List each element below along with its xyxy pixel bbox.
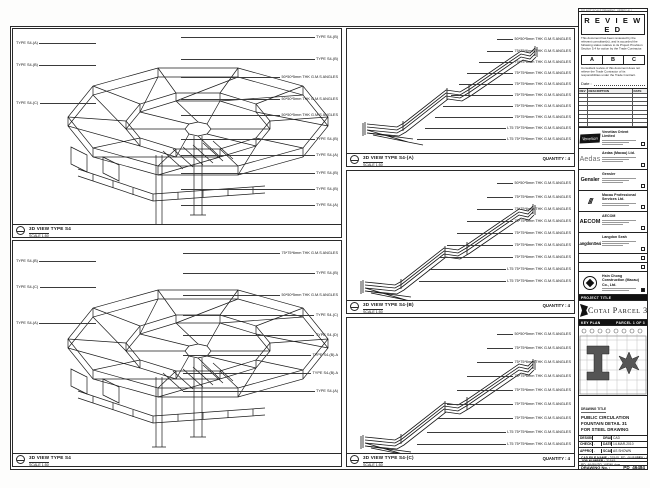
panel-caption: 3D VIEW TYPE S4 SCALE 1:50 bbox=[13, 453, 341, 466]
status-option-b: B bbox=[603, 56, 624, 64]
approval-checkbox-checked bbox=[641, 288, 646, 293]
panel-caption: 3D VIEW TYPE S4-(A) SCALE 1:50 QUANTITY … bbox=[347, 153, 574, 166]
contractor-hsin-chong: Hsin Chong Construction (Macau) Co., Ltd… bbox=[579, 272, 647, 295]
leader-label: 75*75*6mm THK G.M.S ANGLES bbox=[443, 104, 571, 108]
leader-label: 75*75*6mm THK G.M.S ANGLES bbox=[437, 416, 571, 420]
reviewed-stamp: R E V I E W E D This document has been r… bbox=[579, 12, 647, 89]
view-title: 3D VIEW TYPE S4 bbox=[29, 455, 71, 460]
panel-caption: 3D VIEW TYPE S4 SCALE 1:50 bbox=[13, 224, 341, 237]
consultant-macau-professional-services: /// Macau Professional Services Ltd. bbox=[579, 191, 647, 212]
leader-label: 50*50*5mm THK G.M.S ANGLES bbox=[181, 97, 338, 101]
leader-label: 50*50*5mm THK G.M.S ANGLES bbox=[497, 37, 571, 41]
banner-ornament-icon bbox=[580, 304, 588, 317]
leader-label: TYPE S4-(B) bbox=[16, 259, 96, 263]
leader-label: 75*75*6mm THK G.M.S ANGLES bbox=[457, 231, 571, 235]
leader-label: 75*75*6mm THK G.M.S ANGLES bbox=[447, 402, 571, 406]
consultant-name: AECOM bbox=[602, 214, 641, 218]
leader-label: L75 75*75*6mm THK G.M.S ANGLES bbox=[425, 126, 571, 130]
panel-3d-view-type-s4-c: 50*50*5mm THK G.M.S ANGLES 75*75*6mm THK… bbox=[346, 317, 575, 467]
consultant-name: Aedas (Macau) Ltd. bbox=[602, 151, 641, 155]
gensler-logo: Gensler bbox=[579, 170, 601, 190]
panel-3d-view-type-s4-a: 50*50*5mm THK G.M.S ANGLES 75*75*6mm THK… bbox=[346, 28, 575, 167]
detail-bubble-icon bbox=[16, 455, 25, 464]
consultant-name: Langdon Seah bbox=[602, 235, 641, 239]
drawing-title-section: DRAWING TITLE PUBLIC CIRCULATION FOUNTAI… bbox=[579, 396, 647, 435]
panel-3d-view-type-s4-top: TYPE S4-(B) TYPE S4-(B) 50*50*5mm THK G.… bbox=[12, 28, 342, 238]
consultant-empty-slot bbox=[579, 263, 647, 272]
view-quantity: QUANTITY : 4 bbox=[543, 456, 570, 461]
project-name: Cotai Parcel 3 bbox=[588, 306, 648, 315]
drawing-sheet: { "panels": { "p1": { "title": "3D VIEW … bbox=[0, 0, 650, 488]
leader-label: 75*75*6mm THK G.M.S ANGLES bbox=[487, 346, 571, 350]
leader-label: 75*75*6mm THK G.M.S ANGLES bbox=[451, 93, 571, 97]
panel-caption: 3D VIEW TYPE S4-(C) SCALE 1:50 QUANTITY … bbox=[347, 453, 574, 466]
hsin-chong-emblem-icon bbox=[579, 272, 601, 294]
revision-table: REV DESCRIPTION DATE bbox=[579, 89, 647, 129]
consultant-name: Macau Professional Services Ltd. bbox=[602, 193, 641, 202]
view-scale: SCALE 1:50 bbox=[29, 462, 49, 467]
approval-checkbox bbox=[641, 247, 646, 252]
leader-label: 75*75*6mm THK G.M.S ANGLES bbox=[477, 207, 571, 211]
aedas-logo: Aedas bbox=[579, 149, 601, 169]
consultant-langdon-seah: LangdonSeah Langdon Seah bbox=[579, 233, 647, 254]
view-quantity: QUANTITY : 4 bbox=[543, 303, 570, 308]
view-title: 3D VIEW TYPE S4-(B) bbox=[363, 302, 414, 307]
leader-label: 75*75*6mm THK G.M.S ANGLES bbox=[439, 255, 571, 259]
approval-checkbox bbox=[641, 142, 646, 147]
approval-checkbox bbox=[641, 184, 646, 189]
panel-3d-view-type-s4-bottom: 75*75*6mm THK G.M.S ANGLES TYPE S4-(B) 5… bbox=[12, 240, 342, 467]
leader-label: TYPE S4-(A) bbox=[16, 321, 96, 325]
leader-label: 75*75*6mm THK G.M.S ANGLES bbox=[183, 251, 338, 255]
leader-label: 50*50*5mm THK G.M.S ANGLES bbox=[497, 332, 571, 336]
status-option-a: A bbox=[582, 56, 603, 64]
detail-bubble-icon bbox=[350, 155, 359, 164]
status-option-c: C bbox=[624, 56, 644, 64]
leader-label: 50*50*5mm THK G.M.S ANGLES bbox=[497, 181, 571, 185]
drawing-number-row: DRAWING No. : PD_46484 bbox=[579, 466, 647, 469]
drawing-title-line: FOR STEEL DRAWING bbox=[581, 427, 645, 433]
leader-label: TYPE S4-(B) bbox=[181, 187, 338, 191]
consultant-empty-slot bbox=[579, 254, 647, 263]
leader-label: L75 75*75*6mm THK G.M.S ANGLES bbox=[417, 442, 571, 446]
leader-label: 75*75*6mm THK G.M.S ANGLES bbox=[479, 60, 571, 64]
leader-label: TYPE S4-(C) bbox=[183, 313, 338, 317]
approval-checkbox bbox=[641, 205, 646, 210]
approval-checkbox bbox=[641, 163, 646, 168]
panel-caption: 3D VIEW TYPE S4-(B) SCALE 1:50 QUANTITY … bbox=[347, 300, 574, 313]
leader-label: TYPE S4-(B).A bbox=[183, 353, 338, 357]
reviewed-date-line: Date : bbox=[581, 81, 645, 86]
signoff-table: DESIGNED DRAWN CAD CHECKED - DATE 14-MAR… bbox=[579, 436, 647, 455]
key-plan bbox=[579, 326, 647, 396]
view-quantity: QUANTITY : 4 bbox=[543, 156, 570, 161]
project-banner: Cotai Parcel 3 bbox=[579, 301, 647, 320]
drawing-title-label: DRAWING TITLE bbox=[581, 407, 606, 412]
approval-checkbox bbox=[641, 256, 646, 261]
detail-bubble-icon bbox=[350, 455, 359, 464]
consultant-aecom: AECOM AECOM bbox=[579, 212, 647, 233]
reviewed-paragraph: This document has been reviewed by the r… bbox=[581, 37, 645, 54]
consultant-gensler: Gensler Gensler bbox=[579, 170, 647, 191]
leader-label: TYPE S4-(D) bbox=[183, 333, 338, 337]
leader-label: 75*75*6mm THK G.M.S ANGLES bbox=[487, 49, 571, 53]
leader-label: TYPE S4-(A) bbox=[181, 203, 338, 207]
contractor-name: Hsin Chong Construction (Macau) Co., Ltd… bbox=[602, 274, 641, 287]
leader-label: TYPE S4-(A) bbox=[181, 153, 338, 157]
view-title: 3D VIEW TYPE S4-(A) bbox=[363, 155, 414, 160]
reviewed-paragraph: Consultant review of this document does … bbox=[581, 67, 645, 79]
leader-label: L75 75*75*6mm THK G.M.S ANGLES bbox=[429, 267, 571, 271]
approval-checkbox bbox=[641, 265, 646, 270]
aecom-logo: AECOM bbox=[579, 212, 601, 232]
leader-label: 75*75*6mm THK G.M.S ANGLES bbox=[457, 388, 571, 392]
leader-label: TYPE S4-(B) bbox=[183, 271, 338, 275]
consultant-name: Venetian Orient Limited bbox=[602, 130, 641, 139]
leader-label: TYPE S4-(A) bbox=[16, 41, 96, 45]
leader-label: 75*75*6mm THK G.M.S ANGLES bbox=[467, 219, 571, 223]
view-scale: SCALE 1:50 bbox=[363, 462, 383, 467]
leader-label: 75*75*6mm THK G.M.S ANGLES bbox=[467, 374, 571, 378]
signoff-row: APPROVED - SCALE AS SHOWN bbox=[579, 448, 647, 454]
review-status-options: A B C bbox=[581, 55, 645, 65]
key-plan-drawing bbox=[579, 326, 647, 395]
leader-label: TYPE S4-(A) bbox=[183, 389, 338, 393]
leader-label: L75 75*75*6mm THK G.M.S ANGLES bbox=[427, 430, 571, 434]
consultant-aedas: Aedas Aedas (Macau) Ltd. bbox=[579, 149, 647, 170]
detail-bubble-icon bbox=[350, 302, 359, 311]
leader-label: TYPE S4-(B) bbox=[181, 137, 338, 141]
leader-label: 50*50*5mm THK G.M.S ANGLES bbox=[181, 113, 338, 117]
leader-label: TYPE S4-(C) bbox=[16, 285, 96, 289]
revision-row bbox=[579, 123, 647, 127]
leader-label: 75*75*6mm THK G.M.S ANGLES bbox=[447, 243, 571, 247]
leader-label: TYPE S4-(B) bbox=[181, 35, 338, 39]
detail-bubble-icon bbox=[16, 226, 25, 235]
leader-label: L75 75*75*6mm THK G.M.S ANGLES bbox=[417, 137, 571, 141]
leader-label: TYPE S4-(B) bbox=[181, 171, 338, 175]
langdon-seah-logo: LangdonSeah bbox=[579, 233, 601, 253]
leader-label: L75 75*75*6mm THK G.M.S ANGLES bbox=[419, 279, 571, 283]
leader-label: TYPE S4-(B).A bbox=[183, 371, 338, 375]
leader-label: TYPE S4-(C) bbox=[16, 101, 96, 105]
approval-checkbox bbox=[641, 226, 646, 231]
leader-label: 75*75*6mm THK G.M.S ANGLES bbox=[435, 115, 571, 119]
view-scale: SCALE 1:50 bbox=[363, 309, 383, 314]
leader-label: TYPE S4-(B) bbox=[16, 63, 96, 67]
panel-3d-view-type-s4-b: 50*50*5mm THK G.M.S ANGLES 75*75*6mm THK… bbox=[346, 170, 575, 314]
leader-label: 75*75*6mm THK G.M.S ANGLES bbox=[487, 195, 571, 199]
leader-label: TYPE S4-(B) bbox=[181, 57, 338, 61]
consultant-venetian: Venetian Venetian Orient Limited bbox=[579, 128, 647, 149]
leader-label: 75*75*6mm THK G.M.S ANGLES bbox=[459, 82, 571, 86]
venetian-logo: Venetian bbox=[579, 128, 601, 148]
view-scale: SCALE 1:50 bbox=[29, 233, 49, 238]
title-block: DO NOT SCALE DRAWING. VERIFY ALL DIMENSI… bbox=[578, 8, 648, 470]
view-scale: SCALE 1:50 bbox=[363, 162, 383, 167]
leader-label: 75*75*6mm THK G.M.S ANGLES bbox=[467, 71, 571, 75]
reviewed-title: R E V I E W E D bbox=[581, 14, 645, 35]
angle-assembly-drawing bbox=[347, 318, 575, 455]
mps-logo: /// bbox=[579, 191, 601, 211]
consultant-name: Gensler bbox=[602, 172, 641, 176]
view-title: 3D VIEW TYPE S4-(C) bbox=[363, 455, 414, 460]
leader-label: 50*50*5mm THK G.M.S ANGLES bbox=[183, 293, 338, 297]
leader-label: 50*50*5mm THK G.M.S ANGLES bbox=[181, 75, 338, 79]
leader-label: 75*75*6mm THK G.M.S ANGLES bbox=[477, 360, 571, 364]
view-title: 3D VIEW TYPE S4 bbox=[29, 226, 71, 231]
